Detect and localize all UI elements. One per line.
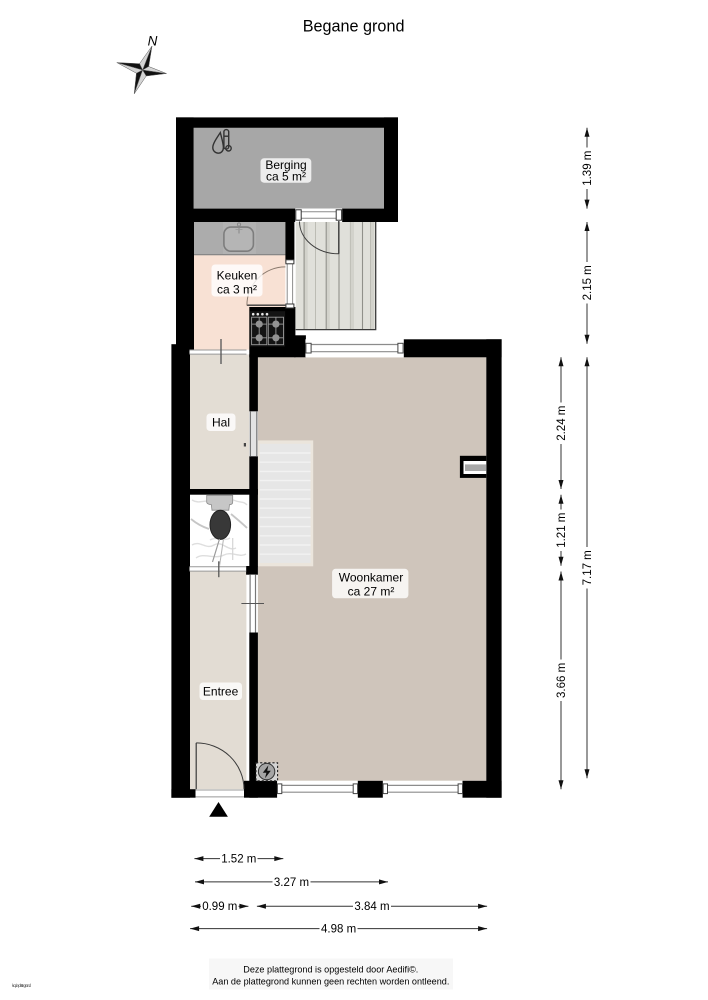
svg-text:0.99 m: 0.99 m xyxy=(202,901,237,913)
svg-text:3.27 m: 3.27 m xyxy=(274,877,309,889)
svg-text:4.98 m: 4.98 m xyxy=(321,924,356,936)
svg-text:ca 5 m²: ca 5 m² xyxy=(266,170,306,184)
svg-text:Woonkamer: Woonkamer xyxy=(339,571,403,585)
svg-text:3.66 m: 3.66 m xyxy=(556,663,568,698)
svg-text:Entree: Entree xyxy=(203,685,239,699)
svg-text:Aan de plattegrond kunnen geen: Aan de plattegrond kunnen geen rechten w… xyxy=(212,977,449,987)
svg-text:ca 27 m²: ca 27 m² xyxy=(348,585,395,599)
svg-text:7.17 m: 7.17 m xyxy=(582,550,594,585)
svg-text:1.21 m: 1.21 m xyxy=(556,513,568,548)
svg-text:1.52 m: 1.52 m xyxy=(221,854,256,866)
svg-text:3.84 m: 3.84 m xyxy=(354,901,389,913)
svg-text:Hal: Hal xyxy=(212,416,230,430)
svg-text:2.15 m: 2.15 m xyxy=(582,265,594,300)
svg-text:1.39 m: 1.39 m xyxy=(582,151,594,186)
svg-text:N: N xyxy=(148,34,158,49)
svg-text:kopie plattegrond: kopie plattegrond xyxy=(12,983,32,988)
svg-text:2.24 m: 2.24 m xyxy=(556,406,568,441)
svg-text:Deze plattegrond is opgesteld: Deze plattegrond is opgesteld door Aedif… xyxy=(243,965,418,975)
svg-text:Begane grond: Begane grond xyxy=(303,18,405,36)
svg-text:Keuken: Keuken xyxy=(217,269,258,283)
svg-text:ca 3 m²: ca 3 m² xyxy=(217,283,257,297)
